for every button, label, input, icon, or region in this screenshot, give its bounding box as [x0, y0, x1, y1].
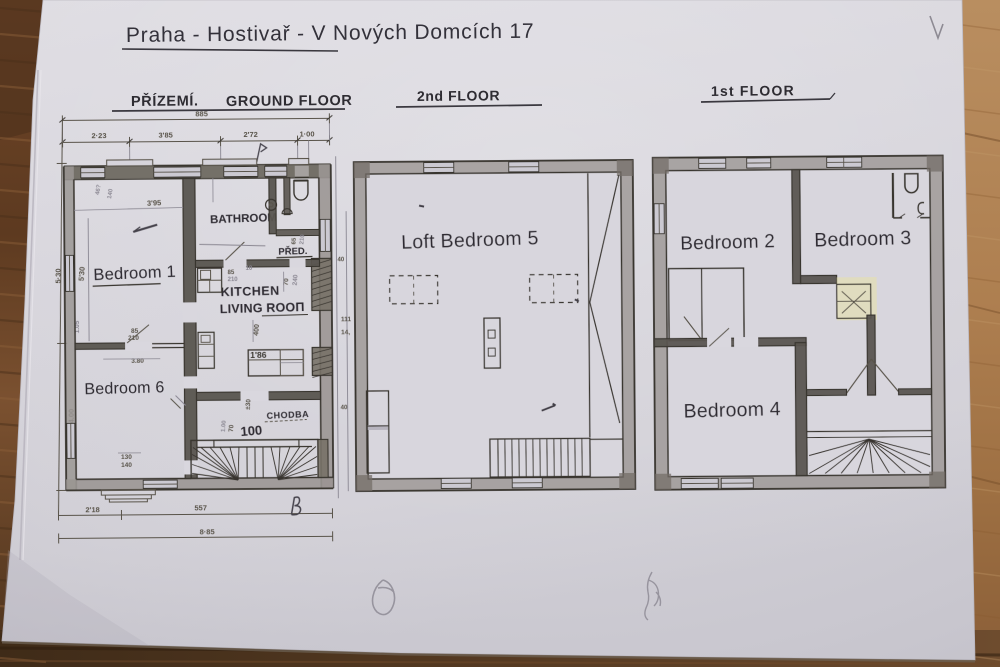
svg-text:40: 40 [337, 257, 344, 263]
svg-text:100: 100 [240, 422, 263, 439]
svg-text:CHODBA: CHODBA [266, 409, 309, 421]
svg-text:BATHROOM: BATHROOM [210, 212, 277, 226]
svg-text:210: 210 [299, 234, 306, 245]
svg-text:557: 557 [194, 503, 207, 512]
svg-text:14,: 14, [341, 329, 350, 336]
svg-text:Praha - Hostivař - V Nových D: Praha - Hostivař - V Nových Domcích 17 [126, 20, 535, 47]
svg-text:140: 140 [121, 462, 132, 469]
svg-text:3'95: 3'95 [147, 198, 162, 208]
svg-text:Bedroom 2: Bedroom 2 [680, 231, 775, 254]
svg-text:Bedroom 3: Bedroom 3 [814, 227, 912, 251]
svg-text:Bedroom 4: Bedroom 4 [683, 398, 781, 422]
svg-text:5·30: 5·30 [54, 268, 63, 283]
svg-text:1.00: 1.00 [221, 420, 228, 433]
svg-text:8·85: 8·85 [200, 527, 215, 536]
svg-text:2'72: 2'72 [243, 130, 257, 139]
svg-text:±30: ±30 [245, 398, 253, 410]
svg-text:2'18: 2'18 [85, 505, 99, 514]
svg-text:210: 210 [128, 335, 139, 342]
svg-text:240: 240 [292, 274, 300, 286]
svg-text:LIVING ROOП: LIVING ROOП [220, 300, 305, 316]
svg-text:PŘED.: PŘED. [278, 245, 307, 258]
svg-text:GROUND FLOOR: GROUND FLOOR [226, 93, 353, 110]
svg-text:3'85: 3'85 [158, 131, 172, 140]
svg-text:1'86: 1'86 [250, 350, 267, 360]
svg-text:5'30: 5'30 [77, 266, 87, 281]
svg-text:85: 85 [131, 328, 139, 335]
svg-text:70: 70 [228, 424, 236, 432]
svg-text:10: 10 [246, 266, 253, 272]
svg-text:2nd FLOOR: 2nd FLOOR [417, 87, 500, 104]
svg-text:1st FLOOR: 1st FLOOR [711, 82, 795, 99]
svg-text:111: 111 [341, 316, 352, 323]
svg-text:40: 40 [341, 405, 348, 411]
svg-text:2·23: 2·23 [91, 131, 106, 140]
svg-text:400: 400 [253, 324, 261, 336]
svg-text:Bedroom 6: Bedroom 6 [84, 379, 164, 398]
svg-text:PŘÍZEMÍ.: PŘÍZEMÍ. [131, 91, 199, 110]
svg-text:Bedroom 1: Bedroom 1 [93, 263, 176, 285]
svg-text:210: 210 [228, 277, 239, 283]
svg-text:1·00: 1·00 [299, 129, 314, 138]
svg-text:130: 130 [121, 454, 132, 461]
svg-text:KITCHEN: KITCHEN [220, 284, 279, 299]
svg-text:85: 85 [228, 270, 235, 276]
svg-text:65: 65 [291, 237, 298, 245]
svg-text:885: 885 [195, 109, 208, 118]
svg-text:Loft Bedroom 5: Loft Bedroom 5 [401, 227, 539, 254]
